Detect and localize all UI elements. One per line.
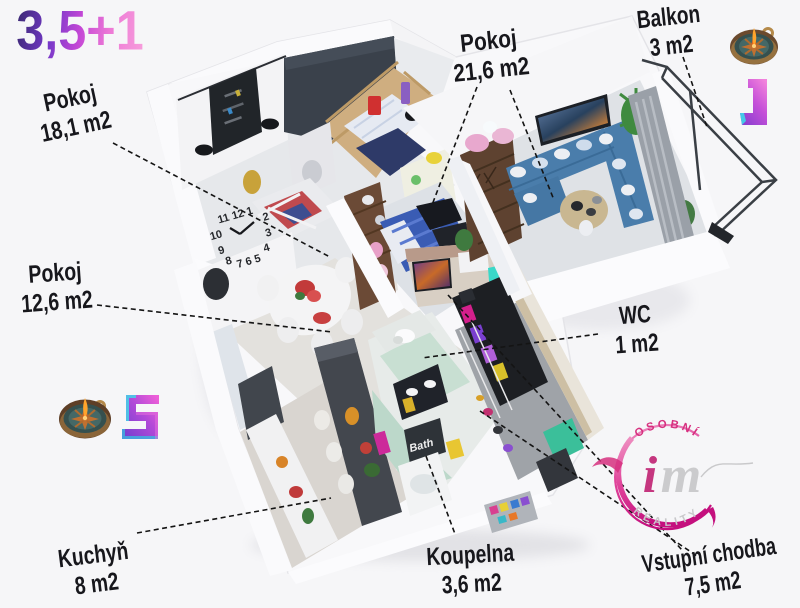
svg-text:REALITY: REALITY: [631, 505, 703, 529]
svg-text:m: m: [661, 447, 701, 504]
svg-text:OSOBNÍ: OSOBNÍ: [633, 418, 702, 440]
svg-text:i: i: [643, 447, 658, 504]
